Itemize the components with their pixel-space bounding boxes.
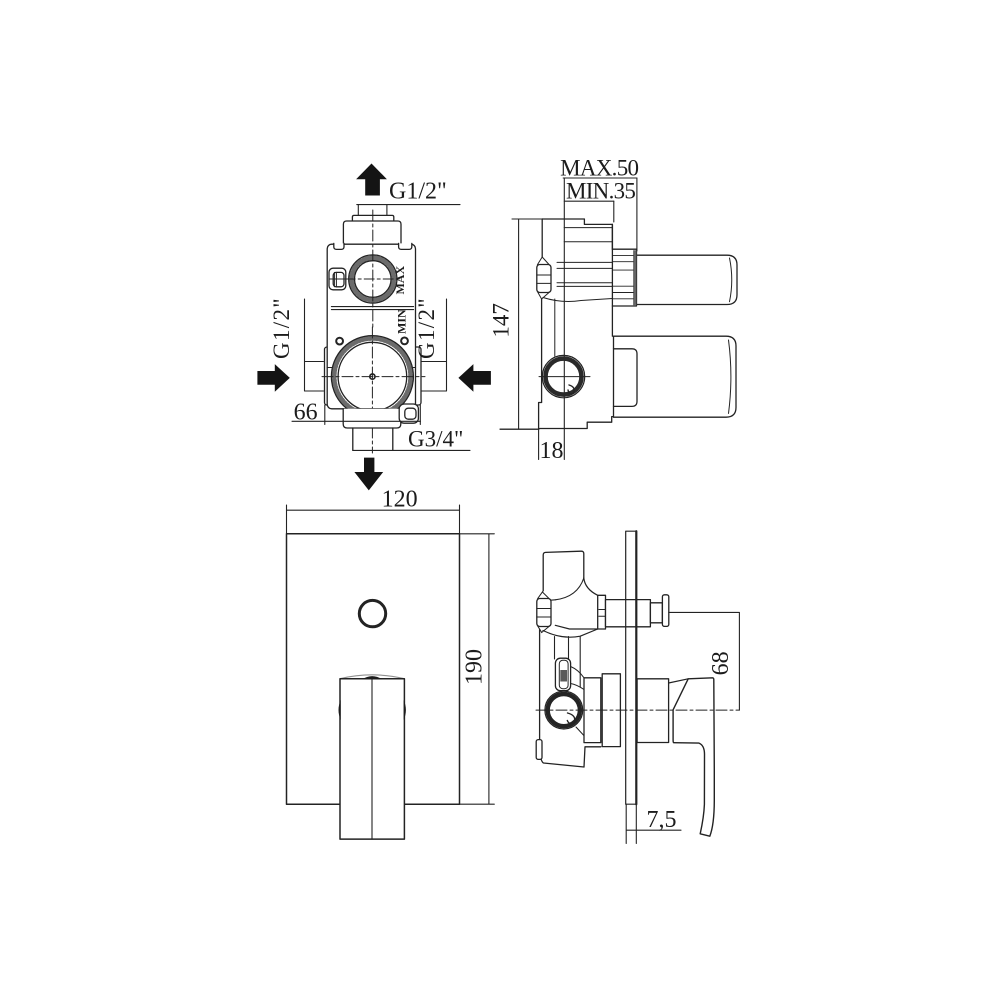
svg-text:18: 18	[540, 438, 564, 464]
svg-text:68: 68	[708, 651, 734, 675]
svg-text:MAX: MAX	[393, 266, 407, 295]
svg-text:MIN: MIN	[395, 309, 409, 334]
svg-text:120: 120	[382, 487, 418, 513]
svg-text:66: 66	[294, 400, 318, 426]
svg-text:G3/4": G3/4"	[408, 427, 463, 452]
svg-text:MIN.35: MIN.35	[566, 179, 635, 204]
svg-text:G1/2": G1/2"	[414, 297, 439, 359]
svg-text:G1/2": G1/2"	[269, 297, 294, 359]
svg-text:7,5: 7,5	[647, 807, 677, 833]
svg-text:G1/2": G1/2"	[389, 179, 447, 205]
svg-text:MAX.50: MAX.50	[560, 156, 638, 181]
svg-text:190: 190	[462, 649, 488, 685]
svg-text:147: 147	[489, 303, 514, 338]
